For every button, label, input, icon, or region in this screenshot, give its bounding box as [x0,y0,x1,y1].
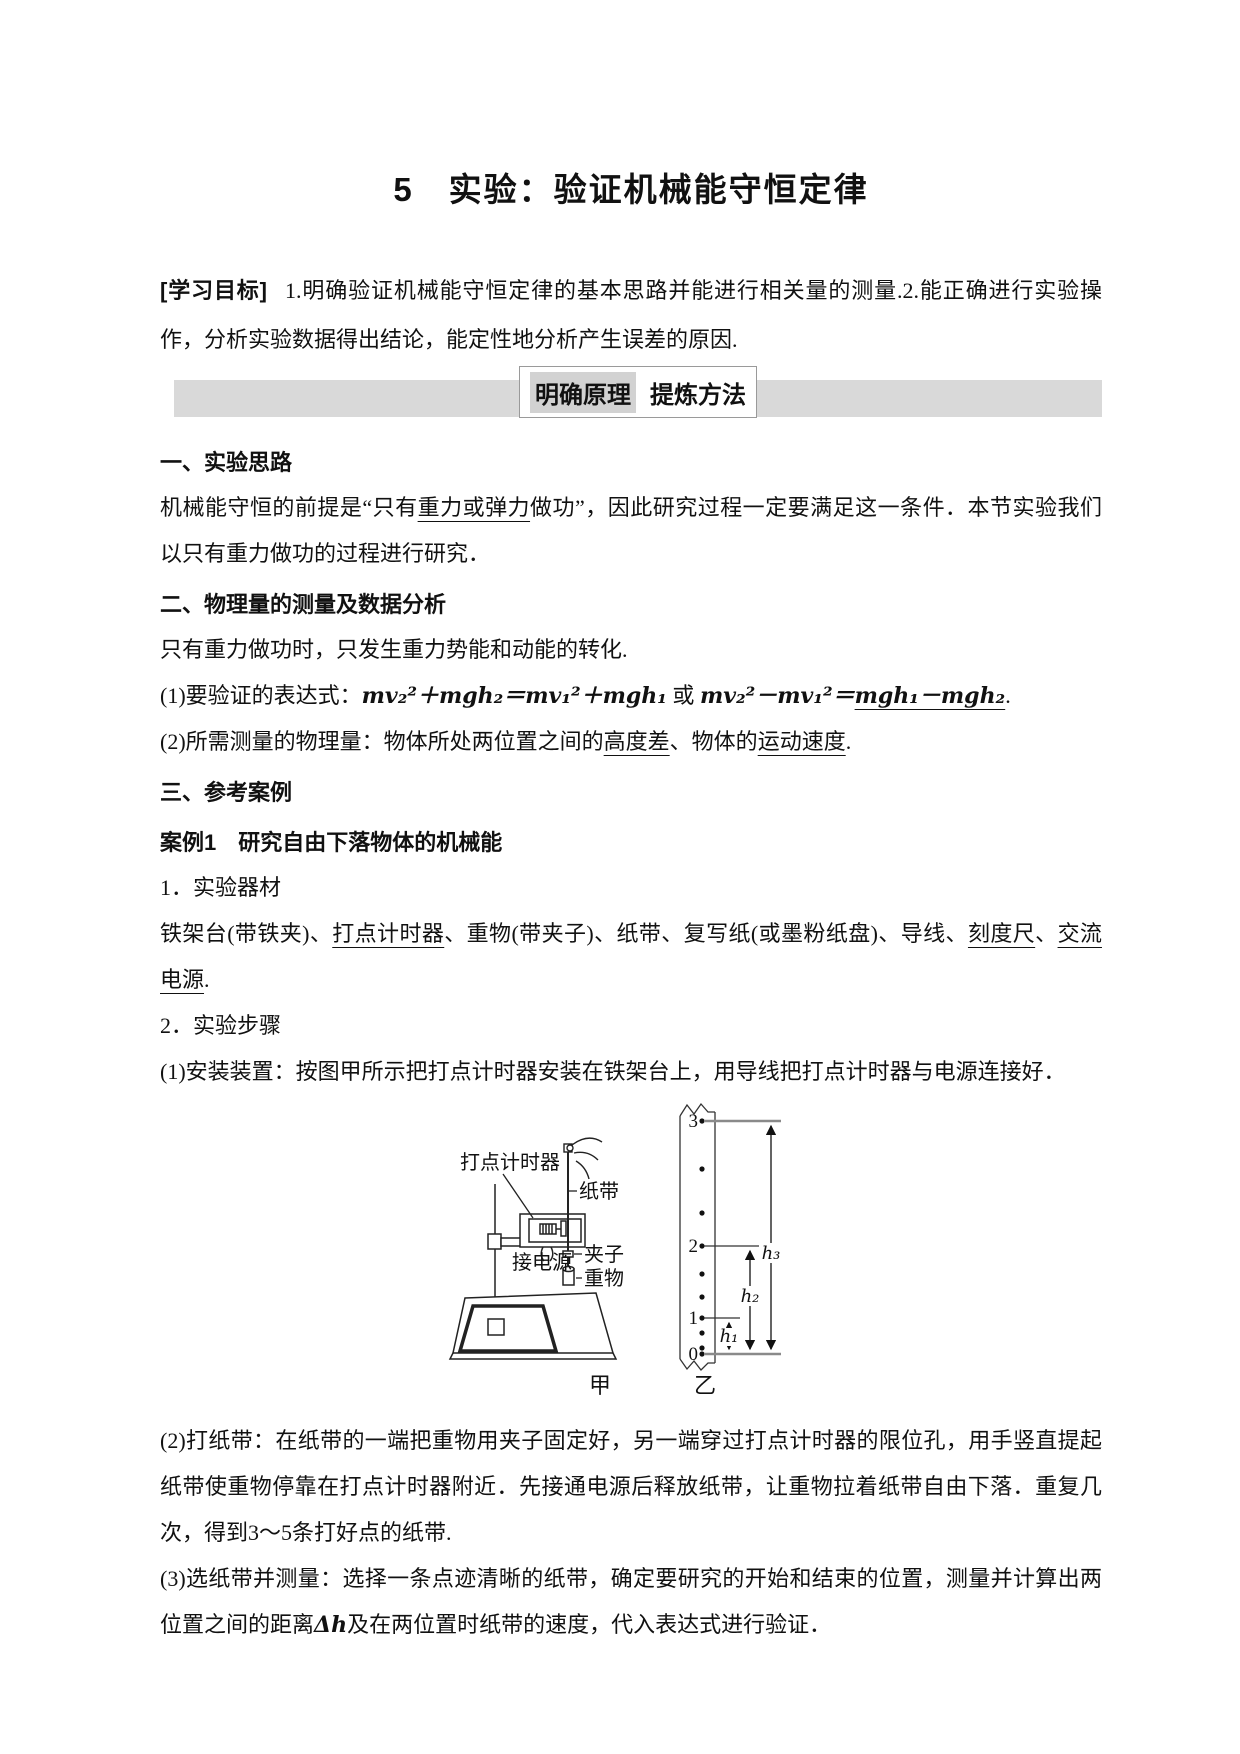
text-segment: 及在两位置时纸带的速度，代入表达式进行验证． [347,1612,831,1637]
text-segment: 铁架台(带铁夹)、 [160,921,332,946]
step2-paragraph: (2)打纸带：在纸带的一端把重物用夹子固定好，另一端穿过打点计时器的限位孔，用手… [160,1418,1102,1556]
objectives-label: [学习目标] [160,278,267,303]
heading-experiment-idea: 一、实验思路 [160,441,1102,485]
equipment-paragraph: 铁架台(带铁夹)、打点计时器、重物(带夹子)、纸带、复写纸(或墨粉纸盘)、导线、… [160,911,1102,1003]
banner-tab-principle: 明确原理 [530,372,636,413]
page-content: 5 实验：验证机械能守恒定律 [学习目标]1.明确验证机械能守恒定律的基本思路并… [0,0,1240,1648]
h2-label: h₂ [741,1286,760,1307]
timer-pointer-line [503,1174,533,1218]
formula-equation-2: mv₂²－mv₁²＝ [700,683,855,709]
weight-label: 重物 [584,1267,624,1290]
subheading-equipment: 1．实验器材 [160,865,1102,911]
experiment-figure: 打点计时器 纸带 接电源 夹子 重物 甲 [448,1101,808,1403]
formula-paragraph: (1)要验证的表达式：mv₂²＋mgh₂＝mv₁²＋mgh₁ 或 mv₂²－mv… [160,673,1102,719]
formula-underlined-answer: mgh₁－mgh₂ [855,683,1006,709]
text-segment: 、 [1035,921,1057,946]
page-title: 5 实验：验证机械能守恒定律 [160,170,1102,210]
step3-paragraph: (3)选纸带并测量：选择一条点迹清晰的纸带，确定要研究的开始和结束的位置，测量并… [160,1556,1102,1648]
text-segment: 、物体的 [670,729,758,754]
point-label-2: 2 [689,1236,699,1257]
underlined-term: 高度差 [604,729,670,754]
experiment-idea-paragraph: 机械能守恒的前提是“只有重力或弹力做功”，因此研究过程一定要满足这一条件．本节实… [160,485,1102,577]
caption-yi: 乙 [694,1373,716,1398]
underlined-term: 重力或弹力 [418,495,530,520]
rod-socket [488,1319,504,1335]
objectives-text: 1.明确验证机械能守恒定律的基本思路并能进行相关量的测量.2.能正确进行实验操作… [160,278,1102,352]
text-segment: 、重物(带夹子)、纸带、复写纸(或墨粉纸盘)、导线、 [444,921,968,946]
h1-label: h₁ [720,1326,739,1347]
formula-period: . [1005,683,1011,708]
underlined-term: 运动速度 [758,729,846,754]
underlined-term: 刻度尺 [968,921,1035,946]
timer-label: 打点计时器 [460,1151,560,1174]
h3-label: h₃ [762,1243,781,1264]
objectives-paragraph: [学习目标]1.明确验证机械能守恒定律的基本思路并能进行相关量的测量.2.能正确… [160,266,1102,364]
delta-h-term: Δh [314,1612,347,1638]
base-edge [450,1353,616,1359]
quantities-paragraph: (2)所需测量的物理量：物体所处两位置之间的高度差、物体的运动速度. [160,719,1102,765]
formula-equation-1: mv₂²＋mgh₂＝mv₁²＋mgh₁ [362,683,667,709]
underlined-term: 打点计时器 [332,921,444,946]
formula-or: 或 [667,683,700,708]
energy-conversion-paragraph: 只有重力做功时，只发生重力势能和动能的转化. [160,627,1102,673]
point-label-1: 1 [689,1308,699,1329]
clip-label: 夹子 [584,1243,624,1266]
heading-reference-case: 三、参考案例 [160,771,1102,815]
case1-heading: 案例1 研究自由下落物体的机械能 [160,821,1102,865]
timer-coil [540,1224,556,1234]
tape-dots [699,1118,704,1356]
textbook-page: 5 实验：验证机械能守恒定律 [学习目标]1.明确验证机械能守恒定律的基本思路并… [0,0,1240,1754]
hand-sketch [564,1138,602,1179]
timer-roller [561,1221,566,1236]
text-segment: (2)所需测量的物理量：物体所处两位置之间的 [160,729,604,754]
banner-tab-method: 提炼方法 [650,375,746,410]
step1-paragraph: (1)安装装置：按图甲所示把打点计时器安装在铁架台上，用导线把打点计时器与电源连… [160,1049,1102,1095]
subheading-steps: 2．实验步骤 [160,1003,1102,1049]
heading-measurement-analysis: 二、物理量的测量及数据分析 [160,583,1102,627]
base-pad [460,1306,556,1351]
text-segment: . [204,967,210,992]
stand-clamp [488,1234,501,1249]
power-label: 接电源 [512,1251,572,1274]
point-label-3: 3 [689,1111,699,1132]
point-label-0: 0 [689,1344,699,1365]
clamp-arm [501,1238,521,1246]
banner-tab: 明确原理 提炼方法 [519,366,757,418]
text-segment: . [846,729,852,754]
tape-label: 纸带 [579,1180,619,1203]
section-banner: 明确原理 提炼方法 [174,380,1102,417]
formula-prefix: (1)要验证的表达式： [160,683,362,708]
caption-jia: 甲 [589,1373,611,1398]
text-segment: 机械能守恒的前提是“只有 [160,495,418,520]
